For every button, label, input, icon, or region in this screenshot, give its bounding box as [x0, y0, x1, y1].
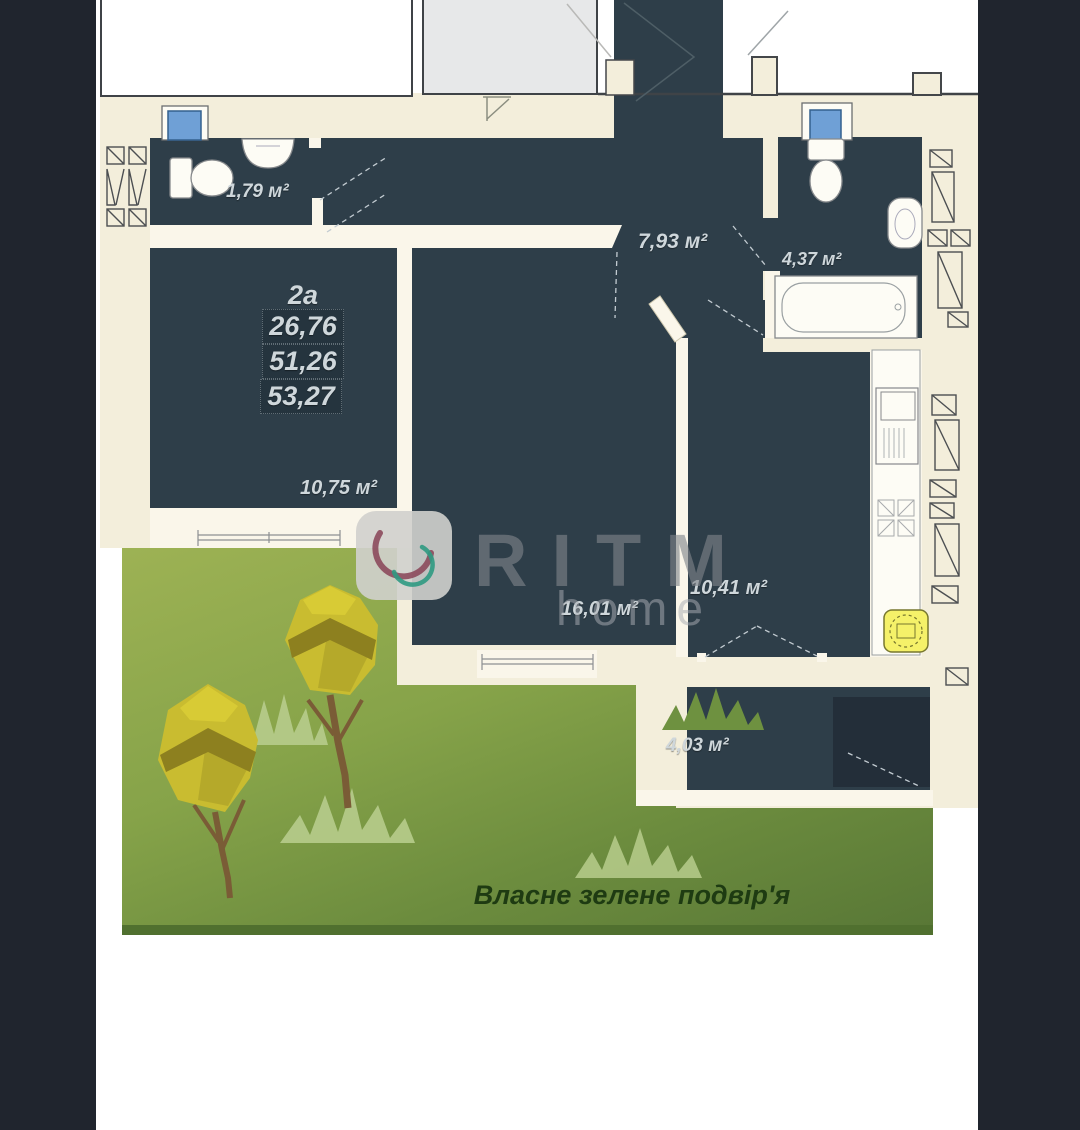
- wall-wc-notch: [309, 138, 321, 148]
- wall-balcony-bottom: [636, 790, 933, 806]
- left-letterbox-bar: [0, 0, 96, 1130]
- hall-area-label: 7,93 м²: [638, 230, 707, 254]
- wall-bathroom-left-bottom: [765, 271, 780, 345]
- bathroom-area-label: 4,37 м²: [782, 249, 841, 270]
- watermark-logo-icon: [356, 511, 452, 600]
- neighbor-unit-white: [100, 0, 413, 97]
- balcony-area-label: 4,03 м²: [666, 735, 729, 757]
- bathroom-door-opening: [763, 218, 778, 271]
- kitchen-counter-band: [870, 350, 922, 657]
- balcony-door-jamb-left: [697, 653, 706, 662]
- bedroom-window-band: [477, 650, 597, 678]
- wall-bathroom-left-top: [763, 140, 778, 218]
- balcony-shaded-area: [833, 697, 930, 787]
- yard-bottom-edge: [122, 925, 933, 935]
- neighbor-unit-gray: [422, 0, 598, 95]
- living-area-label: 10,75 м²: [300, 477, 377, 500]
- wc-small-area-label: 1,79 м²: [226, 181, 289, 203]
- usable-area-metric: 51,26: [262, 344, 344, 379]
- floor-plan-image: 1,79 м² 7,93 м² 4,37 м² 10,75 м² 16,01 м…: [0, 0, 1080, 1130]
- wall-balcony-left: [636, 657, 687, 805]
- wall-wc-stub: [312, 198, 323, 225]
- watermark-suffix-text: home: [556, 582, 712, 637]
- entrance-hall-floor: [614, 0, 723, 140]
- unit-type-label: 2а: [288, 280, 318, 311]
- wall-living-bedroom: [397, 248, 412, 548]
- balcony-door-jamb-right: [817, 653, 827, 662]
- yard-caption: Власне зелене подвір'я: [372, 880, 892, 911]
- wall-vestibule-band: [150, 225, 605, 248]
- total-area-metric: 53,27: [260, 379, 342, 414]
- right-letterbox-bar: [978, 0, 1080, 1130]
- kitchen-floor: [688, 300, 870, 657]
- living-area-metric: 26,76: [262, 309, 344, 344]
